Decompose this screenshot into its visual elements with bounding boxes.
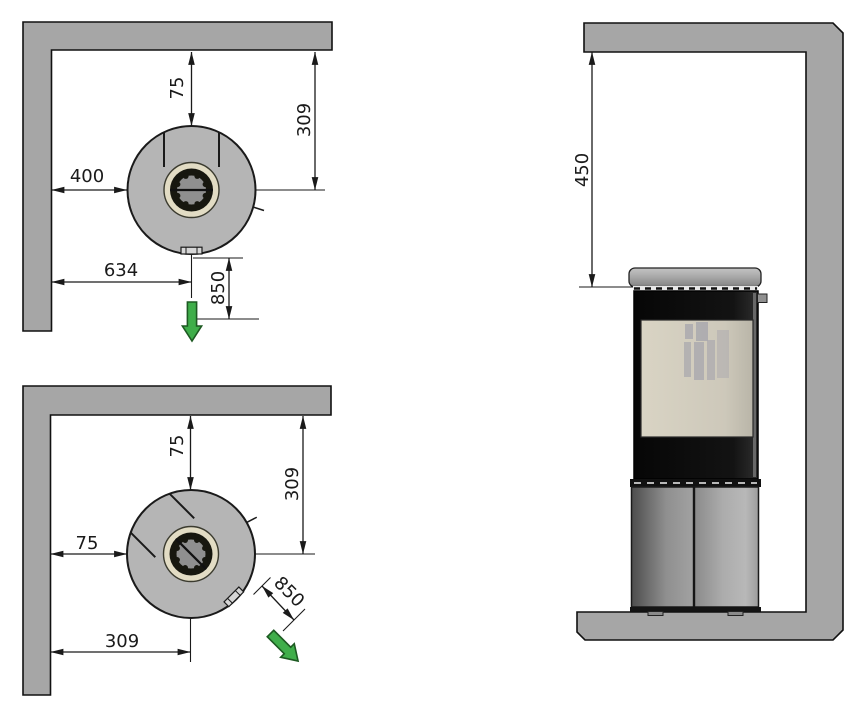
dim-label-rear-gap: 75 xyxy=(167,77,188,100)
dim-label-rear-to-center: 309 xyxy=(294,103,315,137)
diagram-canvas: 75 309 400 634 850 75 309 75 309 850 xyxy=(0,0,853,710)
dim-label-front-clearance: 850 xyxy=(269,573,308,612)
dim-label-rear-gap: 75 xyxy=(167,435,188,458)
foot-right xyxy=(728,612,743,616)
stove-top-view-rotated xyxy=(100,457,287,644)
clearance-diagram-page: 75 309 400 634 850 75 309 75 309 850 xyxy=(0,0,853,710)
base-door-right xyxy=(694,487,759,607)
dim-label-side-gap: 75 xyxy=(76,533,99,554)
dim-label-shelf-clearance: 450 xyxy=(572,153,593,187)
front-direction-arrow xyxy=(264,627,305,668)
dim-label-side-to-center: 634 xyxy=(104,260,138,281)
door-handle xyxy=(758,294,768,303)
front-direction-arrow xyxy=(182,302,201,341)
dim-label-rear-to-center: 309 xyxy=(282,467,303,501)
stove-front-view xyxy=(629,268,767,616)
diagram-corner-rotated: 75 309 75 309 850 xyxy=(23,386,331,695)
stove-top-cap xyxy=(629,268,761,287)
base-door-left xyxy=(632,487,695,607)
dim-label-side-gap: 400 xyxy=(70,166,104,187)
dim-label-side-to-center: 309 xyxy=(105,631,139,652)
plinth xyxy=(630,607,761,612)
diagram-front-view: 450 xyxy=(572,23,843,640)
dim-label-front-clearance: 850 xyxy=(208,271,229,305)
stove-top-view xyxy=(128,126,265,254)
foot-left xyxy=(648,612,663,616)
diagram-corner-straight: 75 309 400 634 850 xyxy=(23,22,332,341)
